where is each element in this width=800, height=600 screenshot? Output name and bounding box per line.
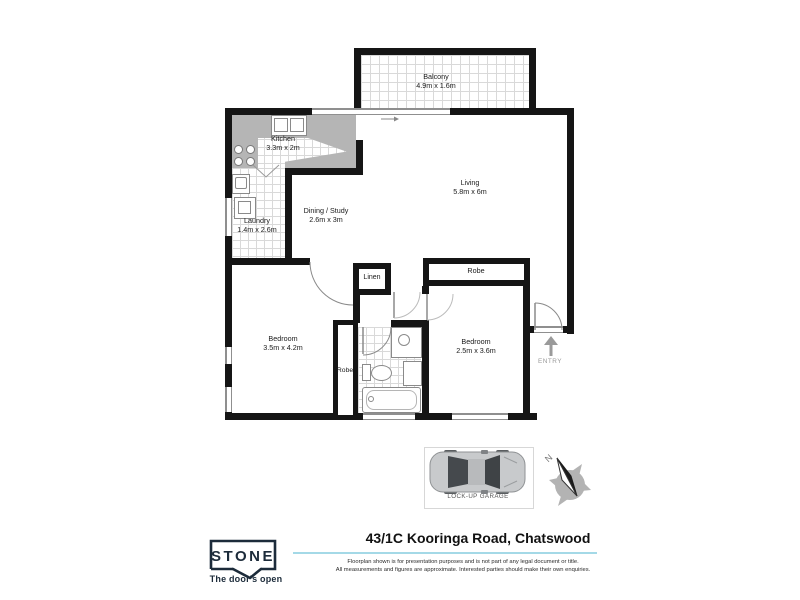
room-dimensions: 4.9m x 1.6m	[376, 81, 496, 90]
exterior-wall-right	[567, 108, 574, 334]
room-name: Balcony	[376, 72, 496, 81]
disclaimer: Floorplan shown is for presentation purp…	[293, 558, 633, 574]
hall-wall-connector	[353, 293, 360, 323]
bedroom2-window	[452, 413, 508, 420]
room-name: Kitchen	[243, 134, 323, 143]
room-dimensions: 2.6m x 3m	[266, 215, 386, 224]
kitchen-wall-bottom	[285, 168, 363, 175]
entry-label: ENTRY	[529, 358, 571, 365]
stove-burner	[246, 157, 255, 166]
balcony-wall-top	[354, 48, 536, 55]
brand-tagline: The door's open	[203, 574, 289, 584]
room-dimensions: 3.5m x 4.2m	[223, 343, 343, 352]
compass-icon: N	[542, 448, 594, 512]
garage-label: LOCK-UP GARAGE	[424, 493, 532, 500]
bathroom-wall-right	[422, 320, 429, 420]
washing-machine-door	[238, 201, 251, 214]
address-title: 43/1C Kooringa Road, Chatswood	[298, 530, 658, 546]
robe-bedroom2-label: Robe	[426, 266, 526, 275]
room-dimensions: 5.8m x 6m	[410, 187, 530, 196]
room-name: Dining / Study	[266, 206, 386, 215]
bedroom1-label: Bedroom 3.5m x 4.2m	[223, 334, 343, 352]
kitchen-wall-stub	[356, 140, 363, 175]
toilet-bowl	[371, 365, 392, 381]
room-name: Bedroom	[416, 337, 536, 346]
kitchen-window	[312, 108, 375, 115]
kitchen-label: Kitchen 3.3m x 2m	[243, 134, 323, 152]
laundry-tub-basin	[235, 177, 247, 189]
car-icon	[428, 450, 528, 494]
exterior-wall-top-left	[225, 108, 312, 115]
bath-tap	[368, 396, 374, 402]
balcony-sliding-door	[375, 108, 450, 115]
entry-door-sill	[534, 326, 563, 333]
robe-bedroom1-label: Robe	[320, 367, 370, 374]
living-label: Living 5.8m x 6m	[410, 178, 530, 196]
room-name: Living	[410, 178, 530, 187]
room-dimensions: 2.5m x 3.6m	[416, 346, 536, 355]
linen-label: Linen	[347, 274, 397, 281]
basin-bowl	[398, 334, 410, 346]
disclaimer-line2: All measurements and figures are approxi…	[336, 567, 591, 573]
compass-north-label: N	[543, 452, 555, 464]
entry-arrow-icon	[541, 336, 561, 358]
stove-burner	[234, 145, 243, 154]
entry-wall-stub-right	[562, 326, 574, 333]
balcony-label: Balcony 4.9m x 1.6m	[376, 72, 496, 90]
stone-logo-text: STONE	[211, 548, 275, 565]
kitchen-sink-bowl-right	[290, 118, 304, 132]
dining-study-label: Dining / Study 2.6m x 3m	[266, 206, 386, 224]
stove-burner	[234, 157, 243, 166]
room-name: Bedroom	[223, 334, 343, 343]
balcony-wall-right	[529, 48, 536, 112]
bedroom1-window-lower	[225, 387, 232, 412]
kitchen-sink-bowl-left	[274, 118, 288, 132]
bedroom2-wall-left-upper	[422, 286, 429, 294]
bathroom-window	[363, 413, 415, 420]
bedroom1-wall-top	[225, 258, 310, 265]
bedroom2-label: Bedroom 2.5m x 3.6m	[416, 337, 536, 355]
room-dimensions: 1.4m x 2.6m	[217, 225, 297, 234]
vanity-cabinet	[403, 361, 422, 386]
disclaimer-line1: Floorplan shown is for presentation purp…	[347, 559, 578, 565]
bathroom-wall-top	[391, 320, 429, 327]
accent-divider-line	[293, 552, 597, 554]
balcony-wall-left	[354, 48, 361, 112]
room-dimensions: 3.3m x 2m	[243, 143, 323, 152]
exterior-wall-top-right	[450, 108, 574, 115]
floorplan-page: Balcony 4.9m x 1.6m Kitchen 3.3m x 2m La…	[0, 0, 800, 600]
